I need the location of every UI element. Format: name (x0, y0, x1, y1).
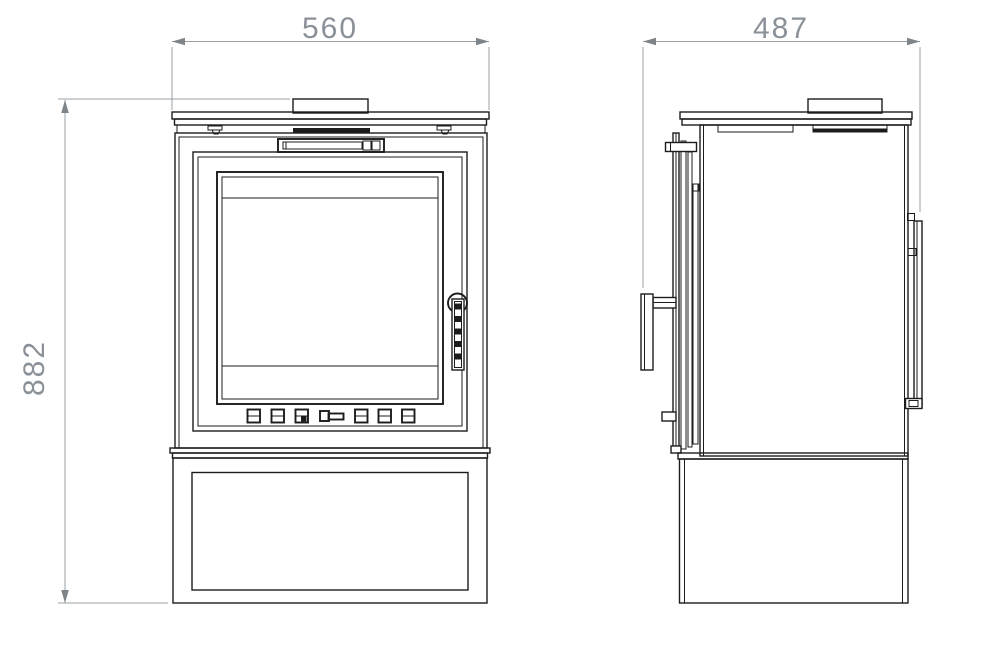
side-underplate-dark-band (813, 129, 887, 133)
air-vent-square (402, 410, 415, 423)
dimension-height-label: 882 (18, 340, 51, 396)
side-top-plate-lower (682, 119, 911, 125)
side-door-handle (641, 294, 676, 370)
air-vent-square (355, 410, 368, 423)
air-control-lever (320, 411, 344, 421)
air-vent-square (296, 410, 309, 423)
shield-clip-mid (908, 249, 916, 256)
side-glass-profile (693, 184, 698, 444)
side-flue-collar (808, 99, 882, 113)
front-glass-frame (217, 172, 443, 404)
front-airwash-latch-right (372, 141, 380, 150)
arrow-up-icon (61, 100, 69, 113)
air-vent-square (379, 410, 392, 423)
arrow-right-icon (476, 38, 489, 46)
air-vent-square (248, 410, 261, 423)
front-view (170, 99, 490, 603)
front-air-vent-row (248, 410, 415, 423)
front-top-plate-lower (175, 119, 487, 125)
side-handle-grip (641, 294, 653, 370)
front-body-inner (179, 137, 483, 448)
dimension-depth-label: 487 (753, 12, 809, 45)
front-door-frame-outer (193, 152, 467, 431)
front-flue-collar (293, 99, 368, 113)
dimension-height-882: 882 (18, 99, 290, 603)
arrow-left-icon (172, 38, 185, 46)
front-clip-right (437, 126, 451, 130)
side-door-foot-step (671, 446, 681, 453)
side-door-mid-panel (681, 141, 686, 449)
front-clip-left (208, 126, 222, 130)
front-door-frame-inner (198, 157, 462, 426)
front-plinth-upper (170, 448, 490, 453)
front-door-handle (448, 294, 467, 371)
front-base (173, 458, 487, 603)
front-airwash-latch-left (363, 141, 371, 150)
arrow-down-icon (61, 590, 69, 603)
air-vent-square (272, 410, 285, 423)
dimension-width-label: 560 (302, 12, 358, 45)
side-bottom-hinge-pin (662, 412, 676, 421)
side-door-rear-panel (688, 152, 692, 447)
front-underplate-dark-band (293, 128, 370, 133)
front-airwash-slot-inner (283, 142, 362, 149)
side-body-outer (700, 125, 908, 456)
side-door-profile (662, 133, 699, 453)
stove-technical-drawing: 560 487 882 (0, 0, 1002, 667)
arrow-right-icon (907, 38, 920, 46)
drawing-svg: 560 487 882 (0, 0, 1002, 667)
arrow-left-icon (643, 38, 656, 46)
side-base (680, 459, 909, 603)
side-view (641, 99, 922, 603)
side-underplate-recess-left (718, 125, 793, 132)
front-base-panel (192, 473, 468, 591)
dimension-width-560: 560 (172, 12, 489, 110)
front-plinth-lower (173, 453, 488, 458)
